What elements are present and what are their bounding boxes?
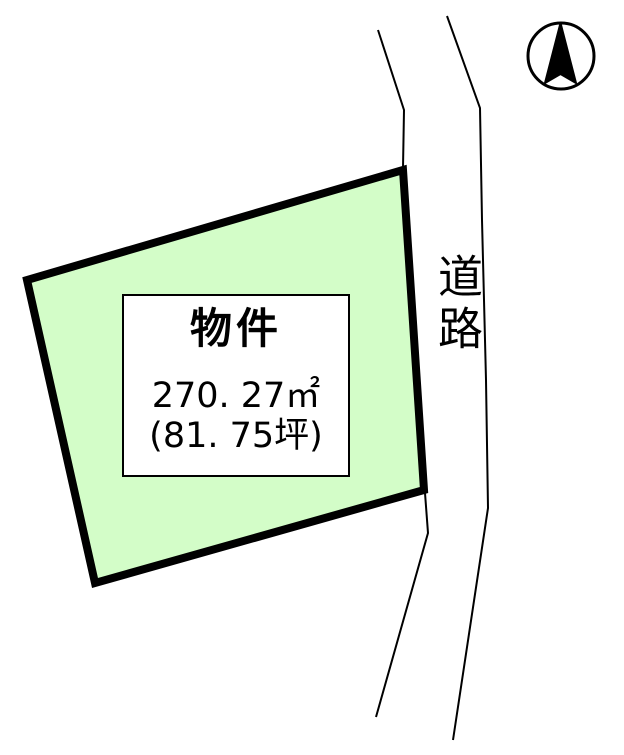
- road-label: 道路: [431, 253, 481, 357]
- plot-map: 物件 270. 27㎡ (81. 75坪) 道路: [0, 0, 624, 755]
- road-right-edge: [447, 16, 488, 740]
- road-left-edge-upper: [378, 30, 404, 168]
- parcel-area-tsubo: (81. 75坪): [149, 416, 323, 456]
- parcel-area-sqm: 270. 27㎡: [152, 376, 321, 416]
- road-left-edge-lower: [376, 493, 428, 717]
- parcel-name-label: 物件: [190, 306, 282, 352]
- parcel-label-box: 物件 270. 27㎡ (81. 75坪): [122, 294, 350, 477]
- compass-north-icon: [528, 23, 594, 89]
